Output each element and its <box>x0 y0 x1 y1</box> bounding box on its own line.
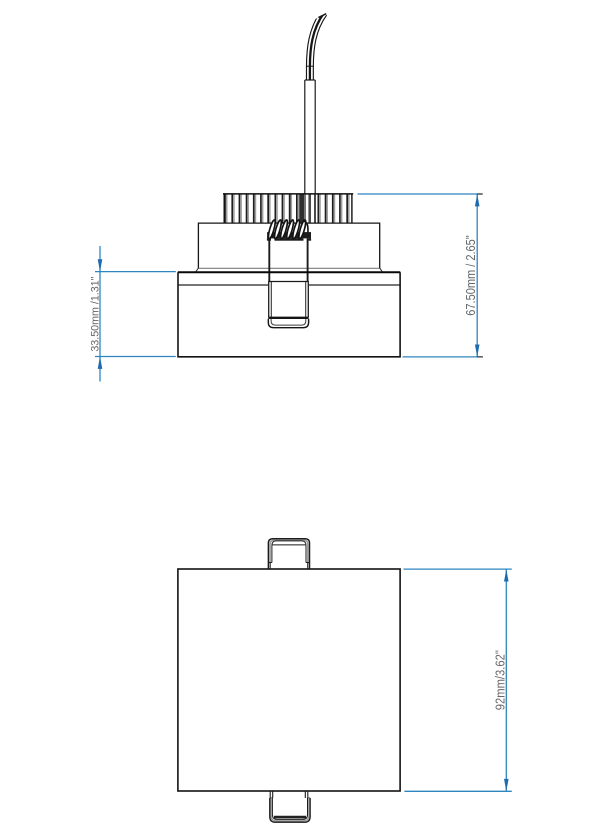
svg-text:33.50mm /1.31": 33.50mm /1.31" <box>89 276 101 351</box>
svg-text:67.50mm / 2.65": 67.50mm / 2.65" <box>464 235 478 315</box>
svg-text:92mm/3.62": 92mm/3.62" <box>494 650 508 710</box>
